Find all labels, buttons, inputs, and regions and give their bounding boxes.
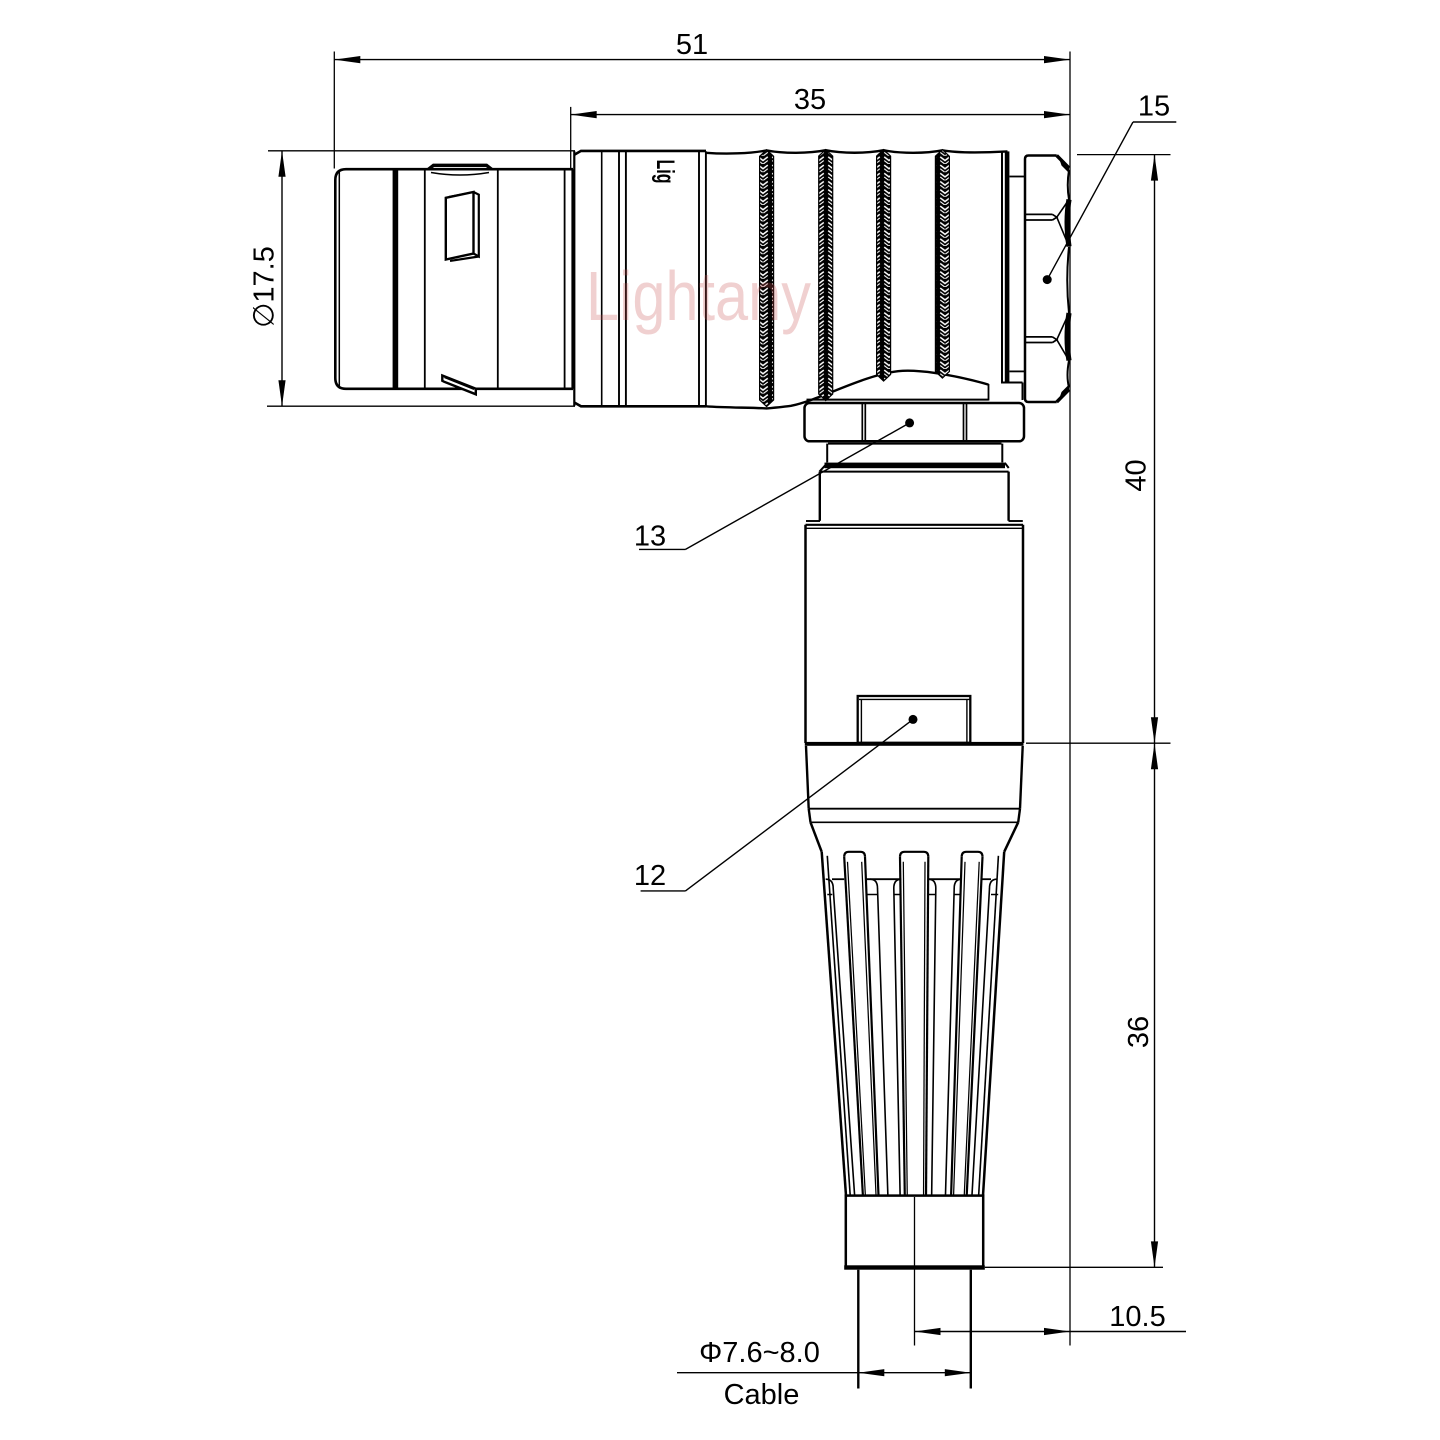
svg-text:15: 15 [1138,91,1170,123]
svg-text:36: 36 [1123,1016,1155,1048]
svg-text:Lig: Lig [651,160,679,184]
svg-text:Φ7.6~8.0: Φ7.6~8.0 [699,1337,820,1369]
svg-text:10.5: 10.5 [1109,1301,1165,1333]
svg-text:51: 51 [676,29,708,61]
svg-text:12: 12 [634,860,666,892]
svg-text:∅17.5: ∅17.5 [249,246,281,328]
svg-text:Cable: Cable [724,1379,800,1411]
svg-text:13: 13 [634,521,666,553]
svg-text:40: 40 [1121,459,1153,491]
svg-text:35: 35 [794,84,826,116]
svg-text:Lightany: Lightany [586,257,811,335]
